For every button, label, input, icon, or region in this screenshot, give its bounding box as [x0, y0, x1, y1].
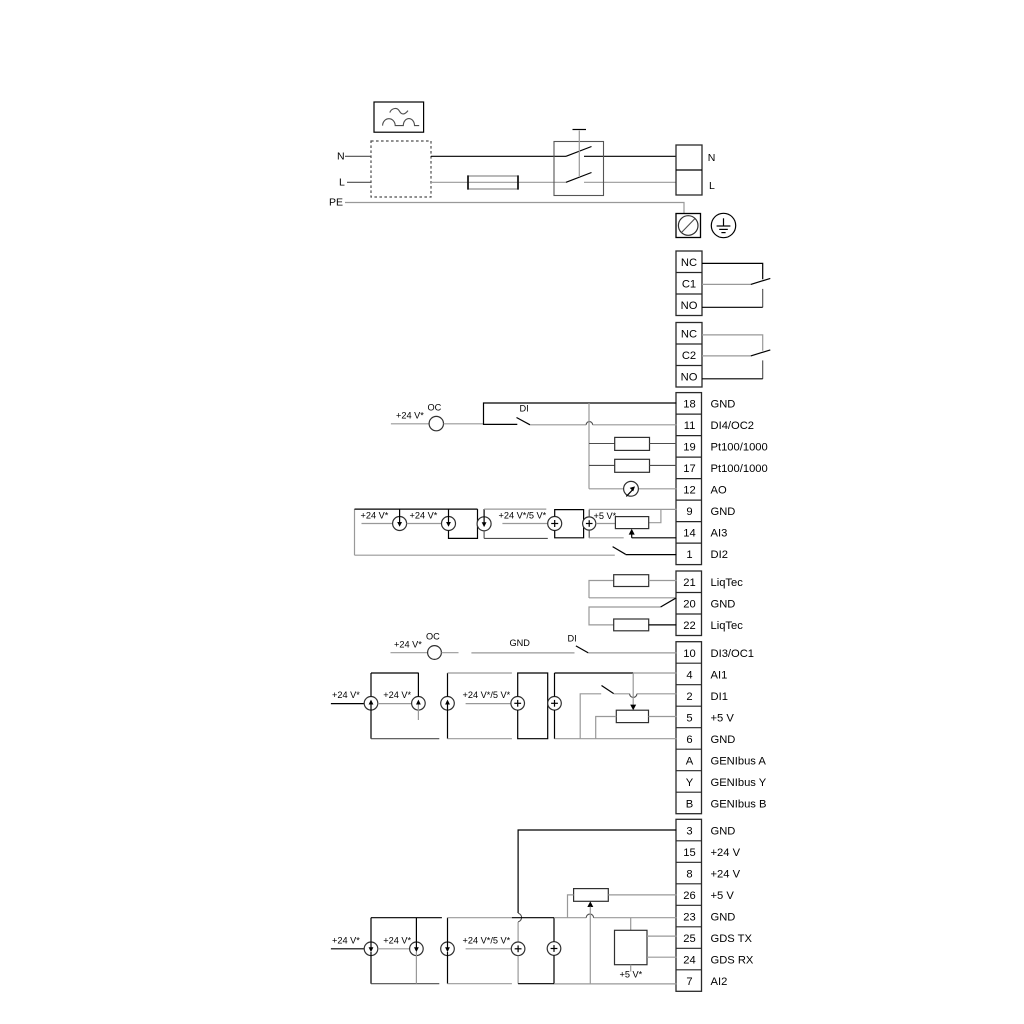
svg-text:A: A — [686, 755, 694, 767]
svg-text:25: 25 — [683, 933, 695, 945]
svg-text:23: 23 — [683, 911, 695, 923]
svg-text:N: N — [708, 152, 716, 164]
svg-text:+24 V: +24 V — [711, 847, 741, 859]
svg-text:14: 14 — [683, 528, 695, 540]
svg-text:+24 V*: +24 V* — [383, 935, 411, 945]
svg-text:12: 12 — [683, 485, 695, 497]
svg-text:10: 10 — [683, 648, 695, 660]
svg-text:6: 6 — [686, 734, 692, 746]
svg-text:22: 22 — [683, 620, 695, 632]
svg-text:B: B — [686, 798, 693, 810]
svg-text:5: 5 — [686, 712, 692, 724]
svg-text:NO: NO — [681, 372, 698, 384]
svg-text:+24 V*: +24 V* — [396, 411, 424, 421]
svg-text:DI3/OC1: DI3/OC1 — [711, 648, 755, 660]
svg-text:+24 V*: +24 V* — [361, 511, 389, 521]
svg-text:Pt100/1000: Pt100/1000 — [711, 463, 768, 475]
svg-text:18: 18 — [683, 399, 695, 411]
svg-text:GND: GND — [711, 825, 736, 837]
svg-text:GND: GND — [711, 399, 736, 411]
svg-text:+24 V: +24 V — [711, 868, 741, 880]
svg-text:24: 24 — [683, 954, 695, 966]
svg-text:GENIbus A: GENIbus A — [711, 755, 767, 767]
svg-text:GENIbus B: GENIbus B — [711, 798, 767, 810]
svg-text:LiqTec: LiqTec — [711, 577, 744, 589]
svg-text:1: 1 — [686, 549, 692, 561]
svg-text:+5 V: +5 V — [711, 712, 735, 724]
svg-text:C1: C1 — [682, 279, 696, 291]
svg-text:DI: DI — [520, 403, 529, 413]
svg-text:NO: NO — [681, 300, 698, 312]
svg-text:C2: C2 — [682, 350, 696, 362]
svg-text:+24 V*: +24 V* — [332, 690, 360, 700]
svg-text:OC: OC — [426, 632, 440, 642]
svg-text:L: L — [339, 176, 345, 188]
svg-text:Y: Y — [686, 777, 694, 789]
svg-text:+24 V*: +24 V* — [410, 511, 438, 521]
svg-text:+24 V*/5 V*: +24 V*/5 V* — [463, 690, 511, 700]
svg-text:+24 V*: +24 V* — [332, 935, 360, 945]
svg-text:2: 2 — [686, 691, 692, 703]
svg-text:NC: NC — [681, 329, 697, 341]
svg-text:N: N — [337, 151, 345, 163]
svg-text:+5 V*: +5 V* — [594, 511, 617, 521]
svg-text:DI2: DI2 — [711, 549, 728, 561]
svg-text:15: 15 — [683, 847, 695, 859]
svg-text:4: 4 — [686, 669, 692, 681]
svg-text:+24 V*: +24 V* — [383, 690, 411, 700]
svg-text:GDS RX: GDS RX — [711, 954, 754, 966]
svg-text:GND: GND — [711, 734, 736, 746]
svg-text:11: 11 — [684, 420, 696, 432]
svg-text:LiqTec: LiqTec — [711, 620, 744, 632]
svg-text:DI: DI — [568, 633, 577, 643]
svg-text:PE: PE — [329, 197, 343, 209]
svg-text:+24 V*/5 V*: +24 V*/5 V* — [499, 511, 547, 521]
svg-text:GND: GND — [711, 506, 736, 518]
svg-text:DI1: DI1 — [711, 691, 728, 703]
svg-text:+24 V*: +24 V* — [394, 639, 422, 649]
svg-text:GND: GND — [711, 911, 736, 923]
svg-text:+5 V*: +5 V* — [620, 970, 643, 980]
svg-text:3: 3 — [686, 825, 692, 837]
svg-text:L: L — [709, 180, 715, 192]
svg-text:DI4/OC2: DI4/OC2 — [711, 420, 755, 432]
svg-text:GND: GND — [510, 638, 531, 648]
svg-text:19: 19 — [683, 442, 695, 454]
svg-text:GDS TX: GDS TX — [711, 933, 753, 945]
svg-text:21: 21 — [683, 577, 695, 589]
svg-text:17: 17 — [683, 463, 695, 475]
svg-text:7: 7 — [686, 976, 692, 988]
svg-text:OC: OC — [428, 403, 442, 413]
svg-text:20: 20 — [683, 599, 695, 611]
svg-text:GND: GND — [711, 599, 736, 611]
svg-text:NC: NC — [681, 257, 697, 269]
svg-text:9: 9 — [686, 506, 692, 518]
svg-text:AI1: AI1 — [711, 669, 728, 681]
svg-text:26: 26 — [683, 890, 695, 902]
svg-text:AI3: AI3 — [711, 528, 728, 540]
svg-text:8: 8 — [686, 868, 692, 880]
svg-text:+5 V: +5 V — [711, 890, 735, 902]
svg-text:AI2: AI2 — [711, 976, 728, 988]
svg-text:AO: AO — [711, 485, 727, 497]
svg-text:GENIbus Y: GENIbus Y — [711, 777, 767, 789]
svg-text:+24 V*/5 V*: +24 V*/5 V* — [463, 935, 511, 945]
svg-text:Pt100/1000: Pt100/1000 — [711, 442, 768, 454]
